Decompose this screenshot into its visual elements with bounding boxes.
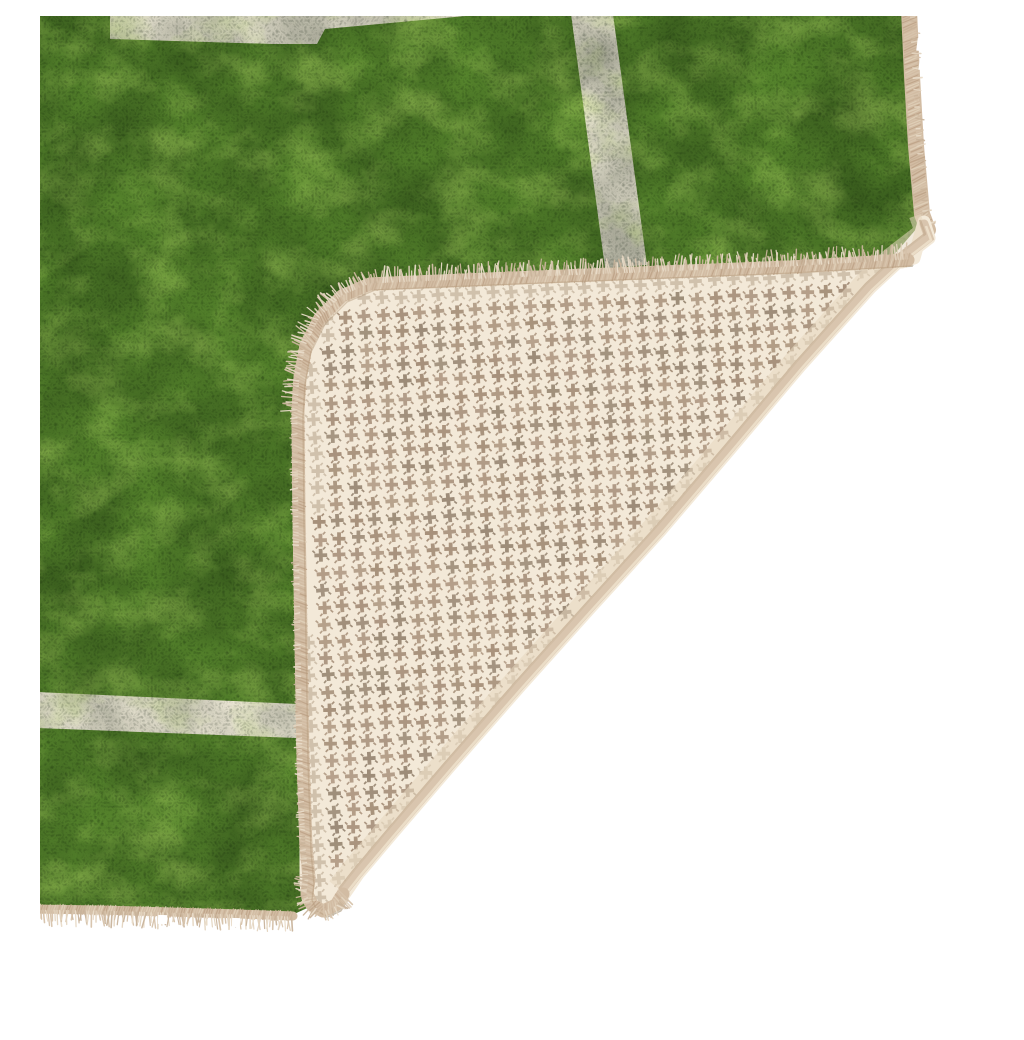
binding-gap-notch <box>918 60 925 71</box>
binding-gap-notch <box>158 915 167 924</box>
rug-product-photo: Product photo of a green football-pitch … <box>40 16 1024 1040</box>
photo-canvas <box>40 16 1024 1040</box>
binding-gap-notch <box>232 918 240 927</box>
